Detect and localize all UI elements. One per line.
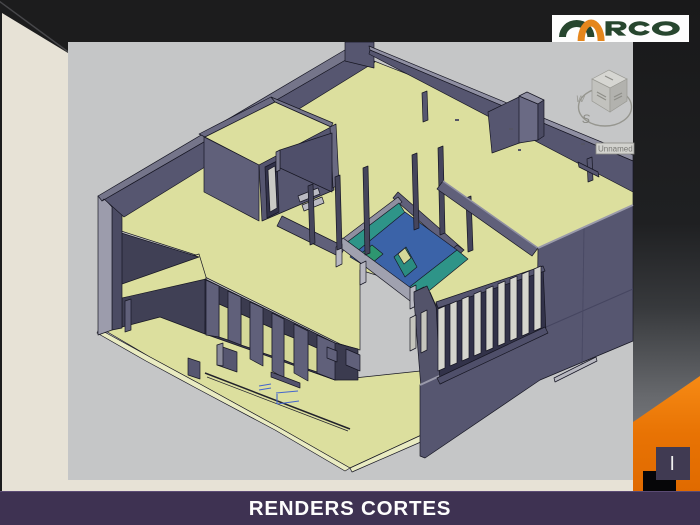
svg-text:RENDERS CORTES: RENDERS CORTES: [249, 497, 452, 520]
svg-text:S: S: [582, 112, 590, 126]
svg-text:Unnamed: Unnamed: [598, 145, 633, 154]
